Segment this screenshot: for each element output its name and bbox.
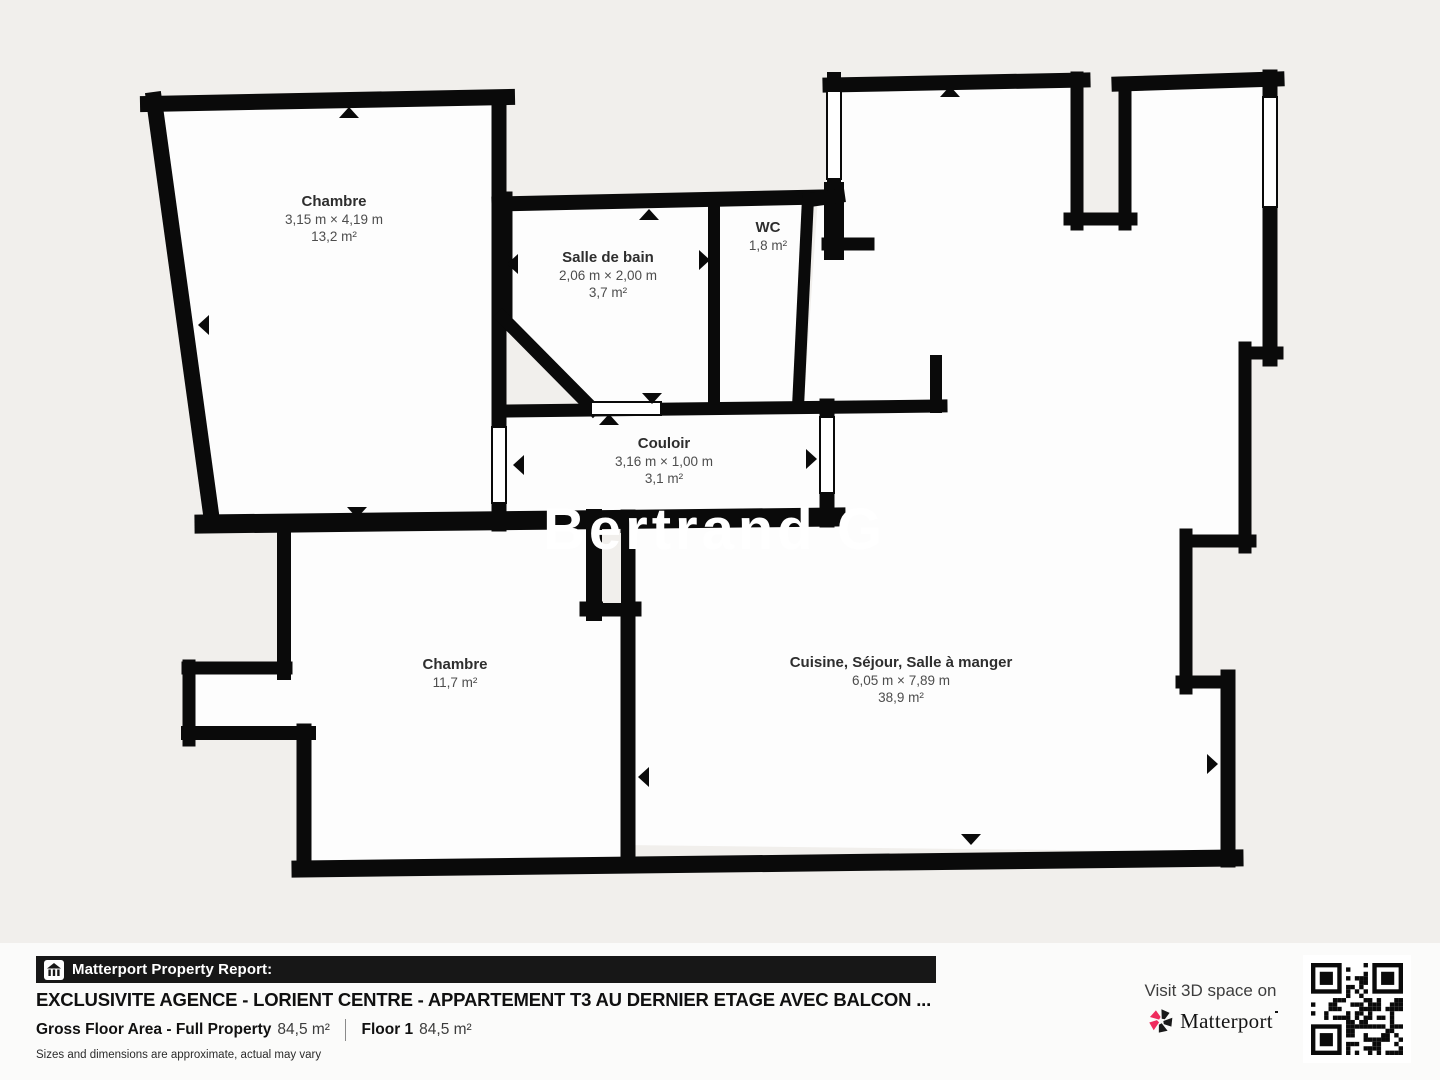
window-cuisine-right	[1263, 97, 1277, 207]
report-bar: Matterport Property Report:	[36, 956, 936, 983]
door-couloir-left	[492, 427, 506, 503]
floor-area-info: Gross Floor Area - Full Property 84,5 m²…	[36, 1019, 472, 1041]
matterport-wordmark: Matterport	[1180, 1009, 1273, 1034]
floor-plan-drawing: Bertrand G	[0, 0, 1440, 943]
matterport-promo: Visit 3D space on Matterport	[1128, 981, 1293, 1034]
qr-code-graphic	[1311, 963, 1403, 1055]
visit-label: Visit 3D space on	[1128, 981, 1293, 1001]
report-bar-label: Matterport Property Report:	[72, 961, 272, 978]
divider	[345, 1019, 347, 1041]
matterport-logo: Matterport	[1128, 1008, 1293, 1034]
floor-label: Floor 1	[361, 1021, 413, 1039]
disclaimer: Sizes and dimensions are approximate, ac…	[36, 1049, 321, 1061]
building-icon	[44, 960, 64, 980]
gross-floor-value: 84,5 m²	[277, 1021, 330, 1039]
room-fill-salle-de-bain	[500, 199, 714, 407]
report-title: EXCLUSIVITE AGENCE - LORIENT CENTRE - AP…	[36, 989, 966, 1011]
room-fill-chambre-2	[190, 521, 624, 866]
footer: Matterport Property Report: EXCLUSIVITE …	[0, 943, 1440, 1080]
door-couloir-right	[820, 417, 834, 493]
qr-code	[1303, 955, 1411, 1063]
floor-plan: Bertrand G Chambre 3,15 m × 4,19 m 13,2 …	[0, 0, 1440, 943]
door-salle-de-bain	[591, 402, 661, 415]
watermark: Bertrand G	[543, 497, 886, 562]
window-cuisine-left	[827, 91, 841, 179]
matterport-pinwheel-icon	[1148, 1008, 1174, 1034]
gross-floor-label: Gross Floor Area - Full Property	[36, 1021, 271, 1039]
floor-value: 84,5 m²	[419, 1021, 472, 1039]
